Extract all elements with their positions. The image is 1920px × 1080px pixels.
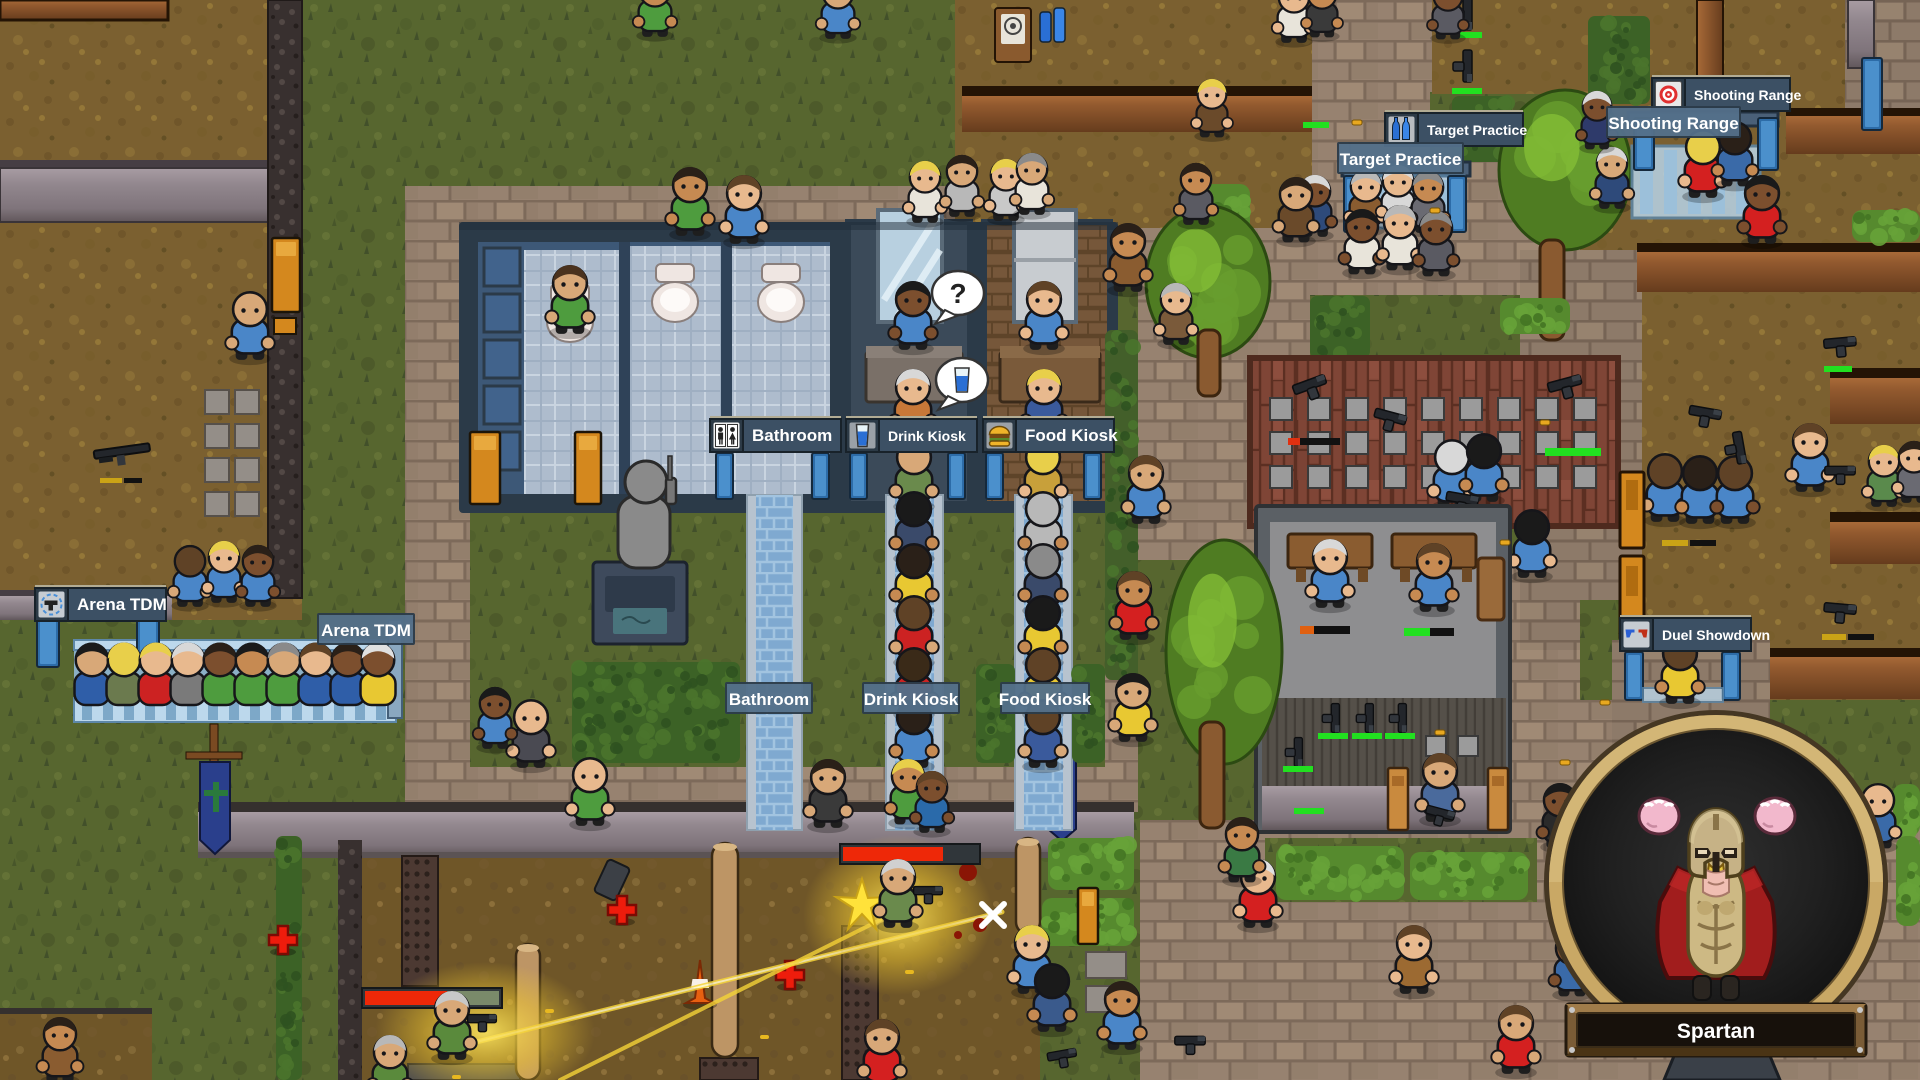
svg-text:Food Kiosk: Food Kiosk [999, 690, 1092, 709]
svg-text:Spartan: Spartan [1677, 1020, 1755, 1043]
svg-text:Shooting Range: Shooting Range [1608, 114, 1738, 133]
svg-text:Target Practice: Target Practice [1427, 122, 1527, 138]
svg-text:Duel Showdown: Duel Showdown [1662, 627, 1770, 643]
svg-text:Arena TDM: Arena TDM [77, 595, 167, 614]
svg-text:?: ? [949, 278, 966, 309]
svg-text:Target Practice: Target Practice [1340, 150, 1462, 169]
svg-text:Shooting Range: Shooting Range [1694, 87, 1802, 103]
svg-text:Drink Kiosk: Drink Kiosk [888, 428, 966, 444]
svg-text:Bathroom: Bathroom [729, 690, 809, 709]
svg-text:Bathroom: Bathroom [752, 426, 832, 445]
svg-text:Food Kiosk: Food Kiosk [1025, 426, 1118, 445]
svg-text:Arena TDM: Arena TDM [321, 621, 411, 640]
svg-text:Drink Kiosk: Drink Kiosk [864, 690, 959, 709]
